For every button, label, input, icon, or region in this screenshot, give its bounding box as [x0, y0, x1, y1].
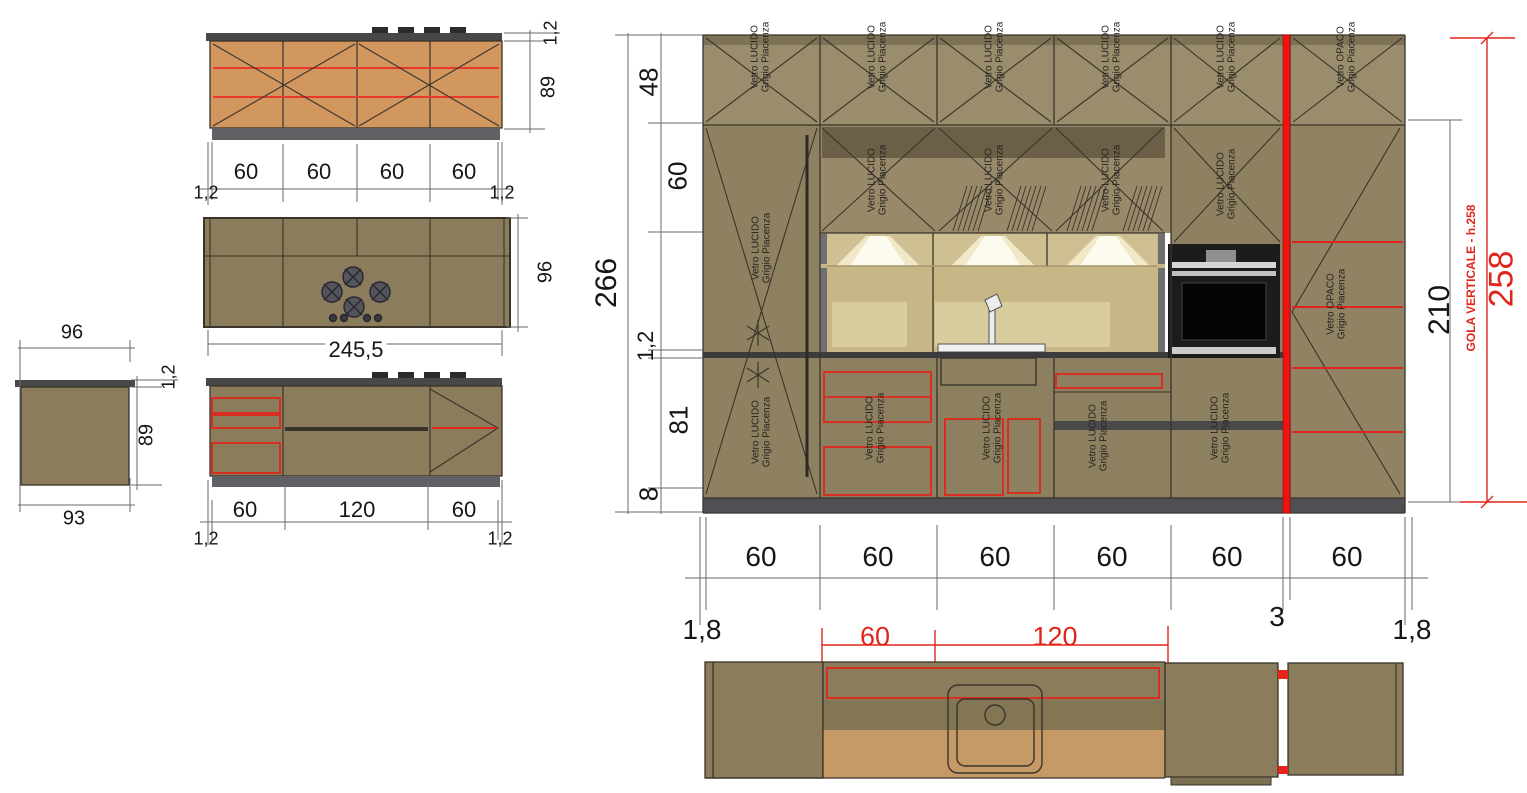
label-line2: Grigio Piacenza	[1227, 149, 1238, 220]
label-line2: Grigio Piacenza	[878, 22, 889, 93]
label-line1: Vetro LUCIDO	[1102, 145, 1113, 216]
oven-handle	[1172, 262, 1276, 268]
backsplash-panel	[832, 302, 907, 347]
dim-gola-height: 258	[1483, 251, 1522, 308]
oven-door-glass	[1182, 283, 1266, 340]
panel-label-lucido: Vetro LUCIDOGrigio Piacenza	[1211, 393, 1232, 464]
label-line1: Vetro LUCIDO	[1217, 149, 1228, 220]
label-line1: Vetro LUCIDO	[752, 213, 763, 284]
wall-elevation	[615, 32, 1527, 672]
panel-label-lucido: Vetro LUCIDOGrigio Piacenza	[1217, 149, 1238, 220]
hob-knob	[398, 27, 414, 33]
label-line2: Grigio Piacenza	[1112, 145, 1123, 216]
hob-knob	[372, 372, 388, 378]
label-line1: Vetro LUCIDO	[868, 22, 879, 93]
label-line1: Vetro LUCIDO	[985, 22, 996, 93]
plan-tall-unit-1	[1165, 663, 1278, 777]
panel-label-opaco: Vetro OPACOGrigio Piacenza	[1337, 22, 1358, 93]
dim-island-front-edge-right: 1,2	[489, 183, 514, 204]
panel-label-lucido: Vetro LUCIDOGrigio Piacenza	[1102, 145, 1123, 216]
dim-elev-base-height: 81	[664, 406, 695, 435]
dim-red-span: 120	[1032, 622, 1077, 653]
label-line1: Vetro OPACO	[1327, 269, 1338, 340]
island-plinth	[212, 128, 500, 140]
label-line2: Grigio Piacenza	[995, 145, 1006, 216]
hob-knob	[424, 27, 440, 33]
island-side-body	[21, 387, 129, 485]
dim-island-front-module: 60	[234, 159, 258, 185]
niche-side-bar	[1158, 234, 1165, 264]
island-plinth	[212, 476, 500, 487]
gola-verticale-strip	[1283, 35, 1290, 513]
dim-elev-gola-gap: 3	[1269, 601, 1285, 633]
panel-label-lucido: Vetro LUCIDOGrigio Piacenza	[751, 22, 772, 93]
panel-label-lucido: Vetro LUCIDOGrigio Piacenza	[1089, 401, 1110, 472]
plan-gola-marker	[1278, 670, 1288, 679]
kitchen-cad-drawing: 1,2 89 60 60 60 60 1,2 1,2 245,5 96 60 1…	[0, 0, 1527, 793]
hob-knob	[450, 372, 466, 378]
plinth	[703, 498, 1405, 513]
hob-knob	[398, 372, 414, 378]
elevation-left-dim-lines	[615, 33, 703, 514]
dim-island-side-thickness: 1,2	[159, 364, 180, 389]
dim-island-back-module: 60	[233, 497, 257, 523]
label-line1: Vetro LUCIDO	[868, 145, 879, 216]
label-line2: Grigio Piacenza	[1112, 22, 1123, 93]
label-line1: Vetro LUCIDO	[1217, 22, 1228, 93]
dim-island-back-module: 120	[339, 497, 376, 523]
dim-island-front-module: 60	[307, 159, 331, 185]
hob-knob	[450, 27, 466, 33]
label-line2: Grigio Piacenza	[995, 22, 1006, 93]
dim-island-front-module: 60	[380, 159, 404, 185]
panel-label-lucido: Vetro LUCIDOGrigio Piacenza	[1217, 22, 1238, 93]
dim-island-side-top: 96	[61, 322, 83, 345]
oven-display	[1206, 250, 1236, 263]
panel-label-lucido: Vetro LUCIDOGrigio Piacenza	[1102, 22, 1123, 93]
dim-elev-module: 60	[979, 541, 1010, 573]
dim-elev-module: 60	[1096, 541, 1127, 573]
dim-island-front-top-thickness: 1,2	[541, 20, 562, 45]
tall-opaco-column	[1290, 125, 1405, 498]
oven-handle	[1172, 271, 1276, 276]
label-line2: Grigio Piacenza	[1221, 393, 1232, 464]
dim-elev-module: 60	[1211, 541, 1242, 573]
panel-label-opaco: Vetro OPACOGrigio Piacenza	[1327, 269, 1348, 340]
island-countertop	[15, 380, 135, 387]
dim-elev-mid-row: 60	[663, 162, 694, 191]
dim-island-back-module: 60	[452, 497, 476, 523]
label-line2: Grigio Piacenza	[876, 393, 887, 464]
label-line1: Vetro LUCIDO	[983, 393, 994, 464]
dim-island-side-bottom: 93	[63, 508, 85, 531]
dim-island-plan-depth: 96	[535, 261, 558, 283]
dim-island-front-module: 60	[452, 159, 476, 185]
label-line2: Grigio Piacenza	[878, 145, 889, 216]
dim-island-plan-width: 245,5	[325, 337, 386, 363]
panel-label-lucido: Vetro LUCIDOGrigio Piacenza	[868, 145, 889, 216]
plan-worktop-band	[823, 730, 1165, 778]
label-line2: Grigio Piacenza	[1347, 22, 1358, 93]
label-line2: Grigio Piacenza	[762, 213, 773, 284]
label-line2: Grigio Piacenza	[1099, 401, 1110, 472]
island-doors-body	[210, 41, 502, 128]
dim-elev-edge-left: 1,8	[683, 614, 722, 646]
niche-side-bar	[820, 234, 827, 264]
dim-gola-note: GOLA VERTICALE - h.258	[1464, 205, 1478, 352]
dim-elev-edge-right: 1,8	[1393, 614, 1432, 646]
plan-tall-unit-tab	[1171, 777, 1271, 785]
label-line1: Vetro LUCIDO	[752, 397, 763, 468]
dim-island-back-edge-right: 1,2	[487, 529, 512, 550]
hob-knob	[424, 372, 440, 378]
panel-label-lucido: Vetro LUCIDOGrigio Piacenza	[866, 393, 887, 464]
label-line1: Vetro LUCIDO	[1089, 401, 1100, 472]
wall-plan-view	[705, 662, 1403, 785]
label-line2: Grigio Piacenza	[993, 393, 1004, 464]
panel-label-lucido: Vetro LUCIDOGrigio Piacenza	[985, 22, 1006, 93]
backsplash-panel	[935, 302, 1110, 347]
plan-left-cabinet	[705, 662, 823, 778]
dim-elev-counter-thickness: 1,2	[633, 331, 659, 362]
label-line2: Grigio Piacenza	[1227, 22, 1238, 93]
panel-label-lucido: Vetro LUCIDOGrigio Piacenza	[983, 393, 1004, 464]
dim-elev-module: 60	[862, 541, 893, 573]
label-line2: Grigio Piacenza	[761, 22, 772, 93]
sink-rim	[938, 344, 1045, 352]
dim-island-front-height: 89	[538, 76, 561, 98]
plan-gola-marker	[1278, 766, 1288, 774]
island-countertop	[206, 33, 502, 41]
panel-label-lucido: Vetro LUCIDOGrigio Piacenza	[985, 145, 1006, 216]
label-line1: Vetro LUCIDO	[985, 145, 996, 216]
under-cabinet-lights	[836, 236, 1150, 266]
island-countertop	[206, 378, 502, 386]
label-line1: Vetro LUCIDO	[751, 22, 762, 93]
label-line2: Grigio Piacenza	[1337, 269, 1348, 340]
dim-island-back-edge-left: 1,2	[193, 529, 218, 550]
niche-side-bar	[820, 268, 827, 352]
label-line2: Grigio Piacenza	[762, 397, 773, 468]
elevation-bottom-dim-lines	[685, 517, 1428, 625]
panel-label-lucido: Vetro LUCIDOGrigio Piacenza	[752, 213, 773, 284]
dim-elev-total-height: 266	[590, 258, 624, 308]
dim-island-front-edge-left: 1,2	[193, 183, 218, 204]
label-line1: Vetro OPACO	[1337, 22, 1348, 93]
label-line1: Vetro LUCIDO	[1211, 393, 1222, 464]
panel-label-lucido: Vetro LUCIDOGrigio Piacenza	[752, 397, 773, 468]
hob-knob	[372, 27, 388, 33]
plan-tall-unit-2	[1288, 663, 1403, 775]
built-in-oven	[1168, 244, 1280, 358]
dim-red-module: 60	[860, 622, 890, 653]
dim-elev-tall-height: 210	[1423, 285, 1457, 335]
panel-label-lucido: Vetro LUCIDOGrigio Piacenza	[868, 22, 889, 93]
dim-island-side-height: 89	[136, 424, 159, 446]
label-line1: Vetro LUCIDO	[1102, 22, 1113, 93]
dim-elev-plinth-height: 8	[634, 487, 665, 501]
dim-elev-top-row: 48	[634, 68, 665, 97]
dim-elev-module: 60	[1331, 541, 1362, 573]
island-plan-view	[204, 214, 528, 356]
dim-elev-module: 60	[745, 541, 776, 573]
niche-side-bar	[1158, 268, 1165, 352]
label-line1: Vetro LUCIDO	[866, 393, 877, 464]
